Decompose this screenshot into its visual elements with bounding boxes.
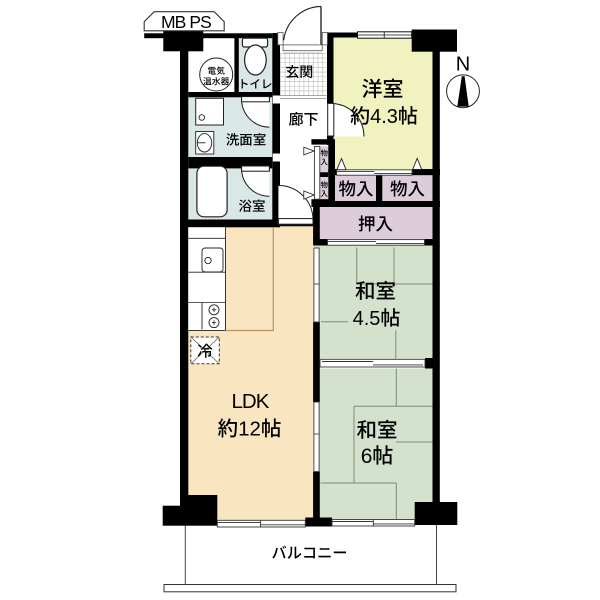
svg-text:LDK: LDK [232,390,270,413]
svg-text:4.3: 4.3 [370,106,398,128]
svg-text:6: 6 [361,445,373,468]
svg-text:MB PS: MB PS [161,12,211,32]
svg-text:12: 12 [238,418,261,441]
svg-text:N: N [456,54,470,76]
svg-text:4.5: 4.5 [353,308,381,330]
